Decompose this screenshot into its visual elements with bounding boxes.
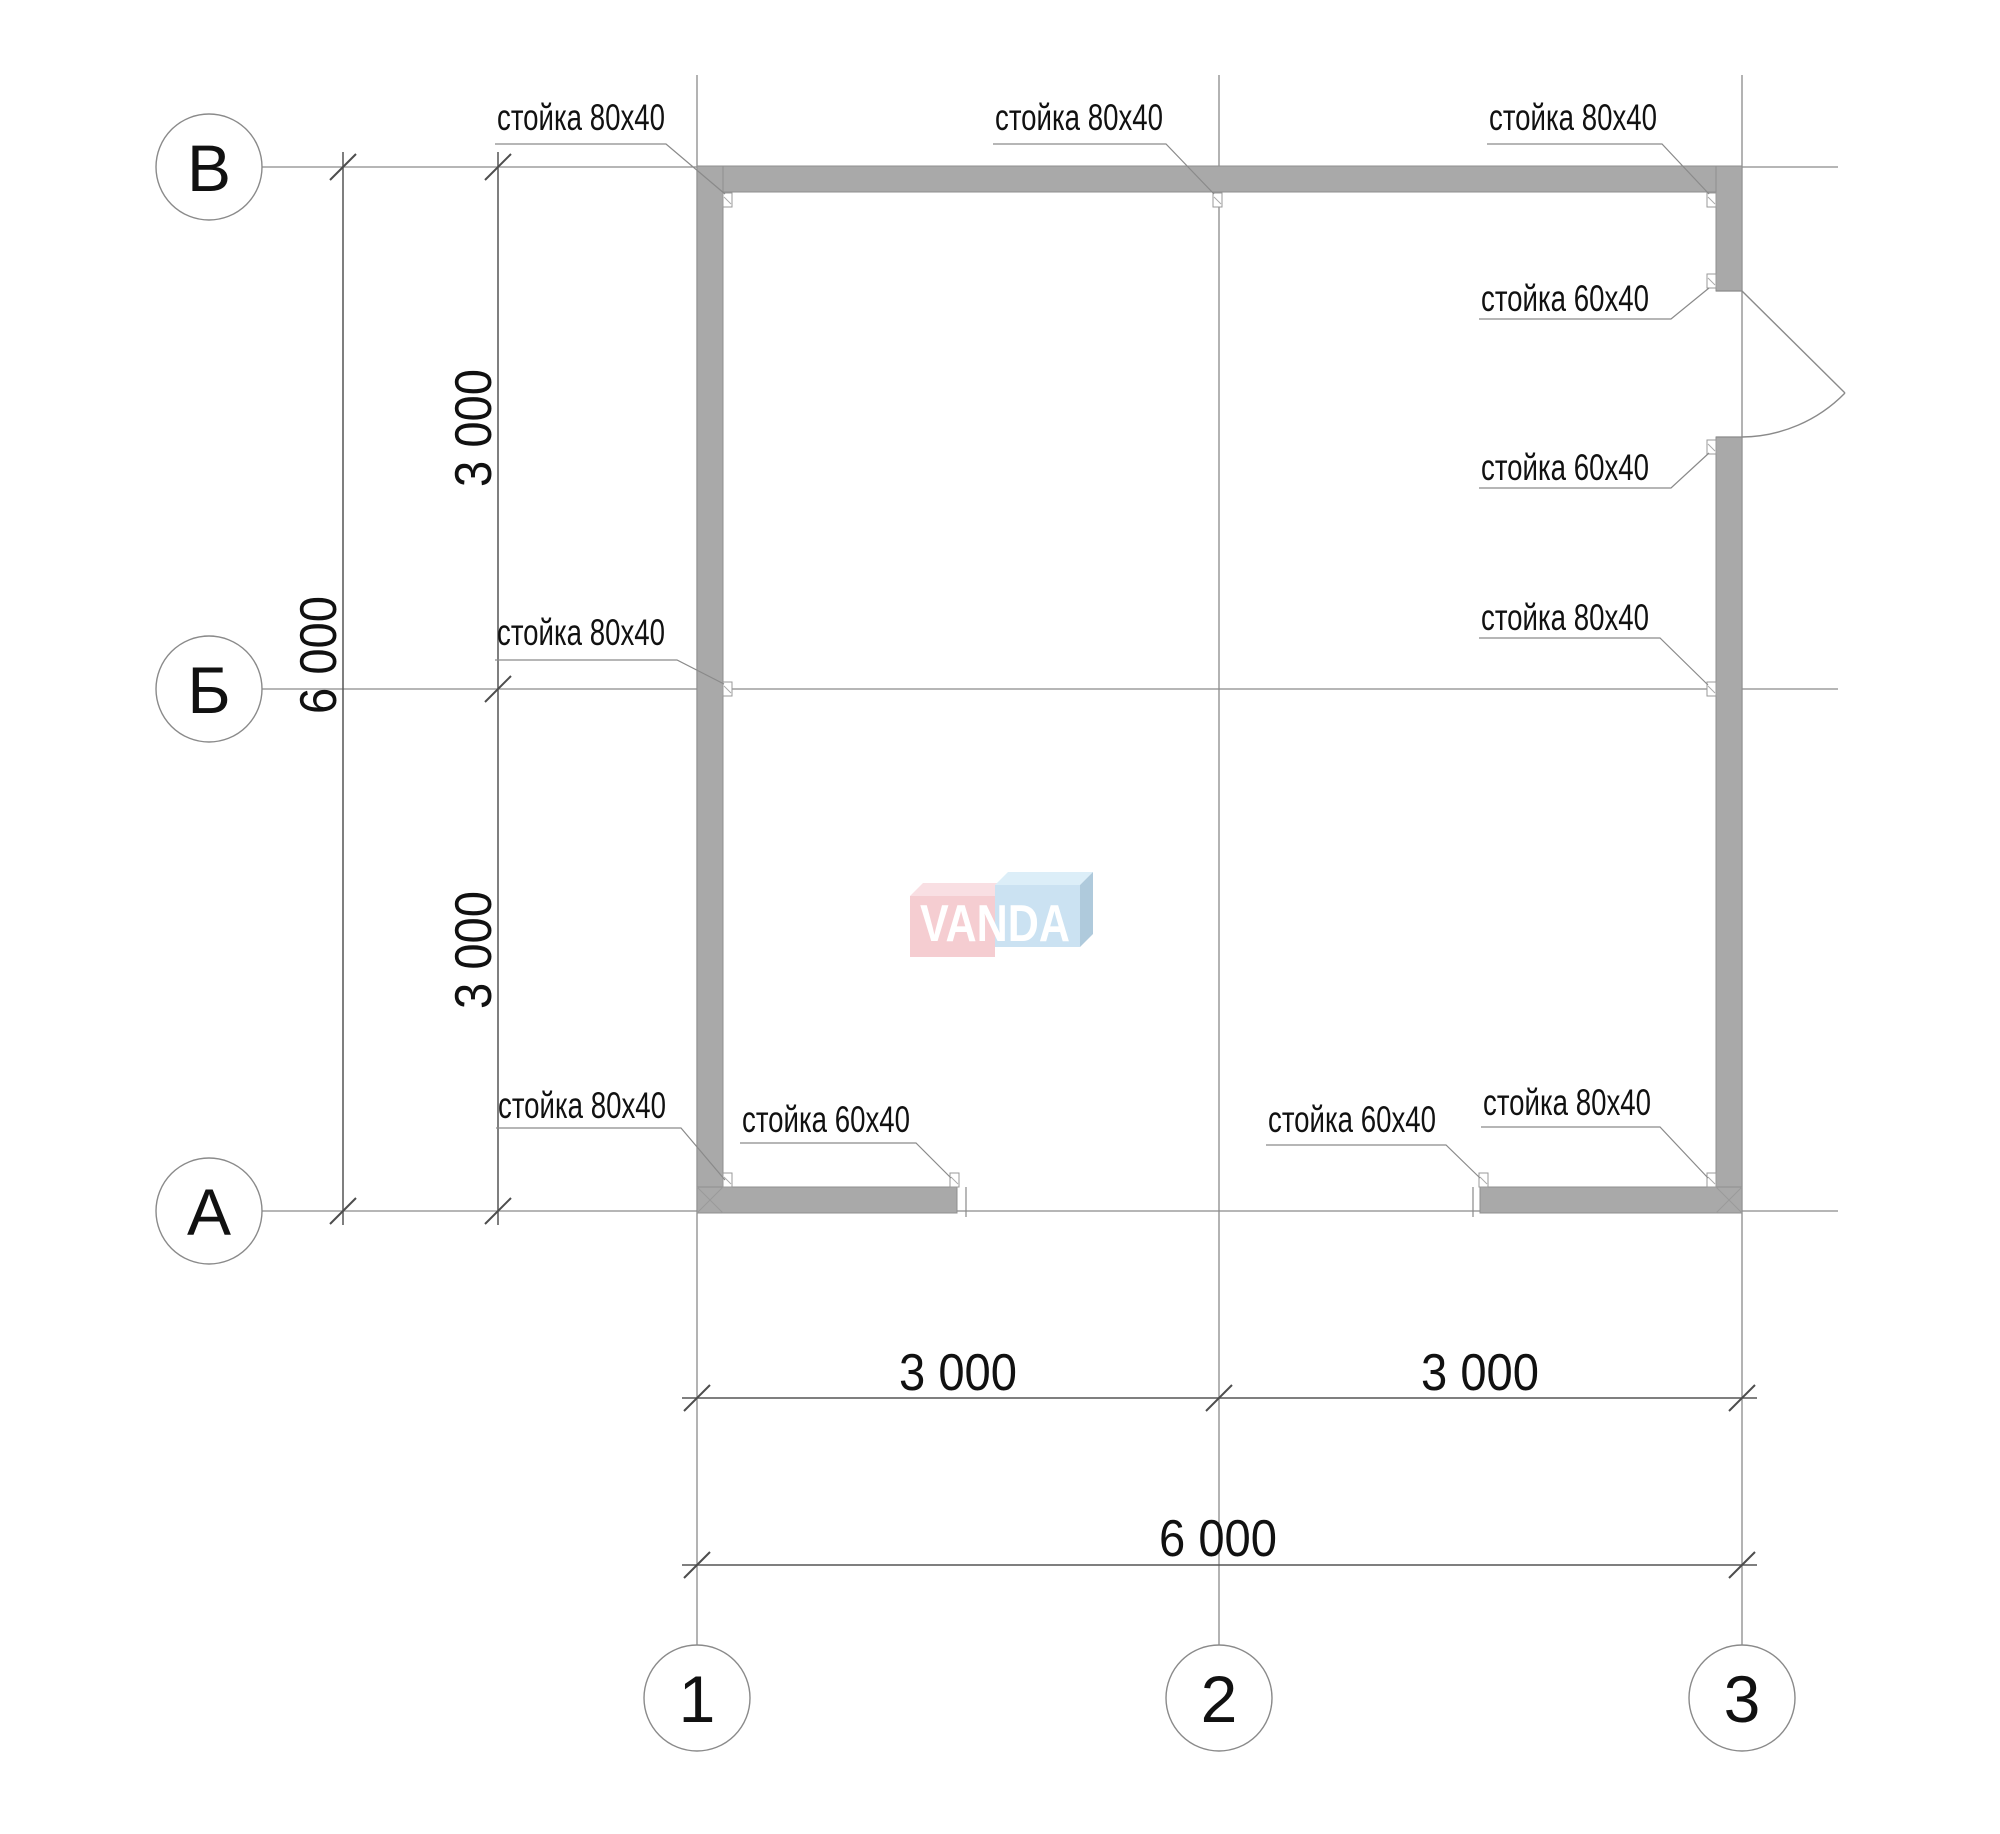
door-frame-lines (1716, 291, 1742, 437)
wall-right-upper (1716, 166, 1742, 291)
leader-bottom-right (1481, 1127, 1708, 1178)
label-stud-bottom-right: стойка 80х40 (1483, 1082, 1651, 1123)
leader-bottom-left (496, 1128, 725, 1180)
wall-bottom-right (1480, 1187, 1742, 1213)
dimension-lines (330, 152, 1757, 1578)
dim-left-bottom: 3 000 (445, 891, 503, 1009)
dim-bottom-left: 3 000 (899, 1344, 1017, 1402)
dim-bottom-total: 6 000 (1159, 1510, 1277, 1568)
wall-right-lower (1716, 437, 1742, 1213)
dimension-ticks (330, 154, 1755, 1578)
dim-left-total: 6 000 (290, 596, 348, 714)
leader-bottom-60-left (740, 1143, 951, 1178)
watermark-blue-top-face (995, 872, 1093, 885)
dimension-texts: 6 000 3 000 3 000 3 000 3 000 6 000 (290, 369, 1539, 1568)
dim-left-top: 3 000 (445, 369, 503, 487)
axis-label-col-3: 3 (1724, 1662, 1761, 1736)
label-stud-bottom-60-right: стойка 60х40 (1268, 1099, 1436, 1140)
door-swing-arc (1742, 393, 1845, 437)
axis-label-row-b: Б (187, 653, 230, 727)
leader-middle-right (1479, 638, 1708, 685)
watermark-text: VANDA (920, 895, 1070, 953)
label-stud-top-middle: стойка 80х40 (995, 97, 1163, 138)
leader-middle-left (495, 660, 724, 684)
label-stud-middle-left: стойка 80х40 (497, 612, 665, 653)
wall-left (697, 166, 723, 1213)
axis-label-col-2: 2 (1201, 1662, 1238, 1736)
label-stud-door-bottom: стойка 60х40 (1481, 447, 1649, 488)
axis-label-row-v: В (187, 131, 231, 205)
dim-bottom-right: 3 000 (1421, 1344, 1539, 1402)
axis-label-col-1: 1 (679, 1662, 716, 1736)
door (1716, 291, 1845, 437)
label-stud-top-right: стойка 80х40 (1489, 97, 1657, 138)
label-stud-door-top: стойка 60х40 (1481, 278, 1649, 319)
label-stud-bottom-left: стойка 80х40 (498, 1085, 666, 1126)
leader-bottom-60-right (1266, 1145, 1480, 1178)
watermark-logo: VANDA (910, 872, 1093, 957)
label-stud-top-left: стойка 80х40 (497, 97, 665, 138)
watermark-blue-side-face (1080, 872, 1093, 947)
axis-label-row-a: А (187, 1175, 231, 1249)
label-stud-bottom-60-left: стойка 60х40 (742, 1099, 910, 1140)
label-stud-middle-right: стойка 80х40 (1481, 597, 1649, 638)
door-leaf (1742, 291, 1845, 393)
leader-top-left (495, 144, 725, 194)
stud-labels: стойка 80х40 стойка 80х40 стойка 80х40 с… (497, 97, 1657, 1140)
wall-bottom-left (697, 1187, 957, 1213)
wall-top (697, 166, 1742, 192)
floor-plan-drawing: 6 000 3 000 3 000 3 000 3 000 6 000 стой… (0, 0, 2000, 1834)
